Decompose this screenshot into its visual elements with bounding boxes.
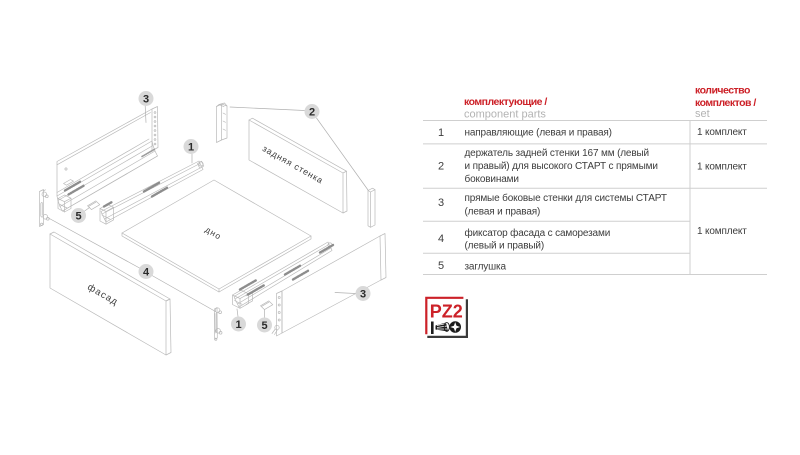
- svg-text:component parts: component parts: [464, 109, 546, 121]
- svg-text:(левый и правый): (левый и правый): [465, 241, 545, 252]
- svg-text:1 комплект: 1 комплект: [697, 226, 747, 237]
- svg-text:4: 4: [143, 267, 150, 279]
- svg-text:5: 5: [438, 260, 444, 272]
- svg-text:1 комплект: 1 комплект: [697, 127, 747, 138]
- svg-text:5: 5: [75, 211, 81, 223]
- svg-text:2: 2: [438, 161, 444, 173]
- svg-text:set: set: [695, 108, 710, 120]
- svg-text:фиксатор фасада с саморезами: фиксатор фасада с саморезами: [465, 227, 611, 239]
- svg-text:количество: количество: [695, 85, 750, 97]
- svg-text:4: 4: [438, 233, 444, 245]
- svg-text:PZ2: PZ2: [430, 302, 463, 322]
- svg-text:1: 1: [188, 142, 194, 154]
- svg-text:заглушка: заглушка: [465, 262, 507, 273]
- svg-text:1: 1: [438, 127, 444, 139]
- svg-text:комплектующие /: комплектующие /: [464, 96, 547, 108]
- svg-text:держатель задней стенки 167 мм: держатель задней стенки 167 мм (левый: [465, 148, 650, 159]
- svg-text:3: 3: [143, 94, 149, 106]
- svg-text:1: 1: [235, 319, 241, 331]
- svg-text:(левая и правая): (левая и правая): [465, 207, 541, 218]
- svg-text:3: 3: [360, 289, 366, 301]
- svg-text:5: 5: [261, 320, 267, 332]
- svg-text:и правый) для высокого СТАРТ с: и правый) для высокого СТАРТ с прямыми: [465, 161, 658, 172]
- svg-text:боковинами: боковинами: [465, 173, 519, 185]
- svg-text:1 комплект: 1 комплект: [697, 162, 747, 173]
- svg-text:направляющие (левая и правая): направляющие (левая и правая): [465, 128, 612, 139]
- svg-text:3: 3: [438, 197, 444, 209]
- svg-text:2: 2: [309, 107, 315, 119]
- svg-text:прямые боковые стенки для сист: прямые боковые стенки для системы СТАРТ: [465, 192, 667, 204]
